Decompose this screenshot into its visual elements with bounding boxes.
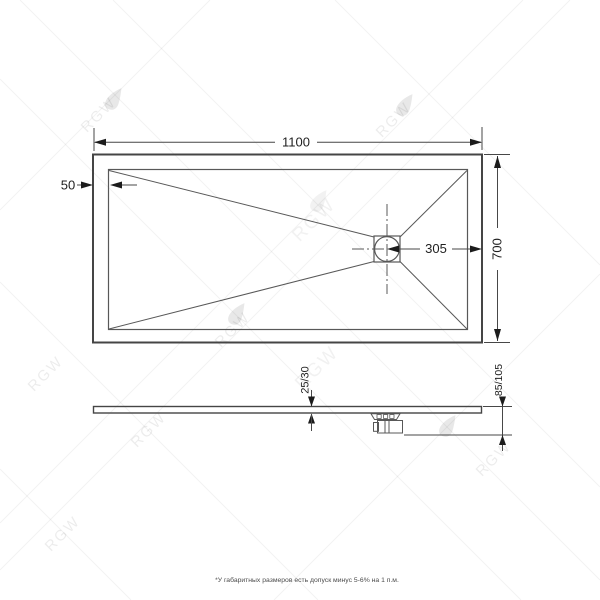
arrowhead-left-icon [387, 246, 399, 253]
slope-diagonal [400, 262, 467, 330]
watermark-brand-text: RGW [128, 409, 170, 451]
dim-edge-offset: 50 [61, 178, 137, 193]
watermark-brand-text: RGW [78, 94, 120, 136]
dim-width: 700 [484, 155, 510, 343]
watermark-diagonal-line [274, 274, 600, 600]
watermark-diagonal-line [0, 0, 570, 570]
drain-flange-detail [377, 415, 381, 419]
tray-profile [94, 407, 482, 414]
technical-drawing: RGW RGW RGW RGW RGW RGW RGW RGW RGW 1100 [0, 0, 600, 600]
plan-view [93, 155, 482, 343]
drain-flange-detail [390, 415, 394, 419]
arrowhead-up-icon [494, 156, 501, 168]
watermark-layer: RGW RGW RGW RGW RGW RGW RGW RGW RGW [0, 0, 600, 600]
dim-drain-offset-label: 305 [425, 241, 447, 256]
watermark-brand-text: RGW [373, 99, 415, 141]
watermark-brand-text: RGW [42, 513, 84, 555]
drain-trap-body [378, 421, 403, 434]
arrowhead-right-icon [470, 246, 482, 253]
tray-outer-rect [93, 155, 482, 343]
watermark-diagonal-line [0, 0, 523, 523]
dim-length-label: 1100 [282, 135, 310, 150]
dim-height-label: 85/105 [493, 364, 505, 396]
slope-diagonal [400, 171, 467, 238]
arrowhead-left-icon [110, 182, 122, 189]
watermark-diagonal-line [113, 0, 600, 487]
arrowhead-right-icon [81, 182, 93, 189]
arrowhead-left-icon [94, 139, 106, 146]
arrowhead-down-icon [499, 397, 506, 407]
arrowhead-down-icon [494, 329, 501, 341]
drawing-page: RGW RGW RGW RGW RGW RGW RGW RGW RGW 1100 [0, 0, 600, 600]
dim-length: 1100 [94, 127, 482, 151]
drain-flange-detail [384, 415, 388, 419]
watermark-diagonal-line [20, 0, 600, 580]
dim-edge-offset-label: 50 [61, 178, 75, 193]
dim-width-label: 700 [490, 238, 505, 260]
watermark-brand-text: RGW [25, 353, 67, 395]
footnote-text: *У габаритных размеров есть допуск минус… [215, 576, 399, 584]
arrowhead-down-icon [308, 397, 315, 407]
dim-thickness-label: 25/30 [300, 366, 312, 394]
